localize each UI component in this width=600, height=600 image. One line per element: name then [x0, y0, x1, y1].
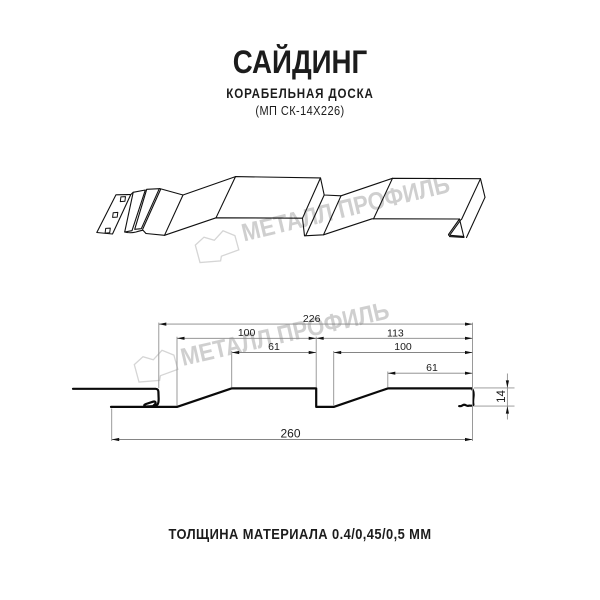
svg-text:61: 61 — [268, 341, 280, 353]
svg-text:14: 14 — [496, 390, 508, 403]
svg-text:226: 226 — [303, 313, 321, 325]
svg-text:100: 100 — [394, 341, 412, 353]
svg-text:МЕТАЛЛ ПРОФИЛЬ: МЕТАЛЛ ПРОФИЛЬ — [239, 170, 453, 247]
svg-text:113: 113 — [387, 327, 404, 339]
svg-text:260: 260 — [280, 427, 300, 441]
svg-text:МЕТАЛЛ ПРОФИЛЬ: МЕТАЛЛ ПРОФИЛЬ — [178, 297, 392, 372]
svg-text:61: 61 — [426, 362, 438, 374]
svg-text:100: 100 — [238, 327, 256, 339]
